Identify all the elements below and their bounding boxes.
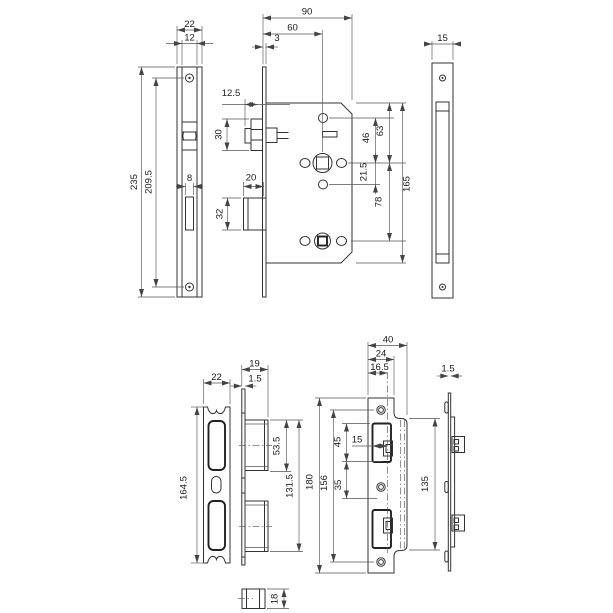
strike1-side-dimensions: 19 1.5 53.5 131.5 (230, 359, 303, 552)
dim-strike2-flange-width: 40 (383, 335, 394, 346)
dim-strike1-depth: 19 (249, 359, 260, 370)
dim-strike1-width: 22 (211, 372, 222, 383)
dim-deadbolt-width: 20 (246, 173, 257, 184)
dim-screw-spacing: 209.5 (144, 170, 155, 194)
dim-backset: 60 (287, 23, 298, 34)
strike-opening-upper (209, 421, 226, 470)
oval-hole (337, 237, 347, 246)
dim-spindle-to-hole: 21.5 (359, 163, 370, 182)
strike-slot-middle (212, 477, 222, 494)
strike2-front-view (368, 372, 407, 573)
dim-top-to-spindle: 63 (375, 126, 386, 137)
mortise-lock-drawing: 22 12 235 209.5 8 (0, 0, 613, 613)
screw-hole (377, 558, 385, 566)
lock-side-dimensions: 15 (424, 33, 461, 60)
deadbolt-opening (186, 197, 194, 230)
lock-side-view (432, 63, 453, 298)
dim-hole-to-spindle: 46 (361, 133, 372, 144)
dim-deadbolt-height: 32 (215, 209, 226, 220)
dim-faceplate-inner-width: 12 (184, 33, 195, 44)
technical-drawing-page: 22 12 235 209.5 8 (0, 0, 613, 613)
latch-detail-view: 18 (238, 589, 289, 609)
latch-opening (182, 122, 197, 150)
screw-boss (445, 402, 449, 413)
dim-latch-face-height: 18 (270, 594, 281, 605)
dim-case-height: 165 (402, 176, 413, 192)
slot (323, 132, 338, 138)
strike1-front-dimensions: 22 164.5 (179, 372, 231, 563)
strike1-side-view (239, 389, 272, 565)
screw-hole (377, 406, 385, 414)
dim-strike1-box: 53.5 (272, 437, 283, 456)
dim-strike2-screw-spacing: 156 (319, 475, 330, 491)
dim-strike2-gap: 35 (333, 480, 344, 491)
dim-case-width: 15 (437, 33, 448, 44)
screw-hole (377, 483, 385, 491)
dim-strike2-height: 180 (305, 474, 316, 490)
case-edge (436, 102, 449, 263)
dim-spindle-to-cylinder: 78 (374, 197, 385, 208)
dim-strike2-lip: 15 (352, 435, 363, 446)
dim-strike2-lip-offset: 16.5 (370, 362, 389, 373)
dim-strike2-flange-height: 135 (420, 476, 431, 492)
screw-boss (445, 482, 449, 493)
dim-slot-width: 8 (187, 173, 192, 184)
oval-hole (337, 159, 347, 168)
fixing-hole (319, 180, 328, 189)
strike1-front-view (204, 407, 231, 563)
latch-bolt (251, 119, 263, 151)
faceplate-dimensions: 22 12 235 209.5 8 (129, 19, 213, 297)
latch-spring-box (266, 128, 277, 143)
spindle-follower (313, 154, 332, 173)
latch-nose (245, 129, 251, 144)
oval-hole (300, 159, 310, 168)
dim-strike1-thickness: 1.5 (248, 374, 261, 385)
dim-case-depth: 90 (302, 7, 313, 18)
dim-strike1-span: 131.5 (285, 474, 296, 498)
strike2-side-view (445, 393, 465, 571)
strike2-side-dimensions: 1.5 (437, 364, 462, 377)
dim-strike2-width: 24 (376, 349, 387, 360)
screw-boss (445, 551, 449, 562)
dim-faceplate-height: 235 (129, 174, 140, 190)
lock-body-view (244, 67, 353, 297)
spindle-square-hole (317, 157, 329, 169)
dim-strike2-opening: 45 (333, 437, 344, 448)
dim-latch-projection: 12.5 (222, 88, 241, 99)
dim-latch-height: 30 (214, 129, 225, 140)
strike-opening-lower (209, 501, 226, 550)
oval-hole (300, 237, 310, 246)
dim-strike2-thickness: 1.5 (441, 364, 454, 375)
wc-follower (315, 233, 331, 249)
dim-strike1-height: 164.5 (179, 476, 190, 500)
wc-square-hole (318, 237, 327, 246)
dim-faceplate-width: 22 (184, 19, 195, 30)
dim-faceplate-thickness: 3 (274, 33, 279, 44)
faceplate-edge (263, 67, 267, 297)
fixing-hole (319, 114, 328, 123)
